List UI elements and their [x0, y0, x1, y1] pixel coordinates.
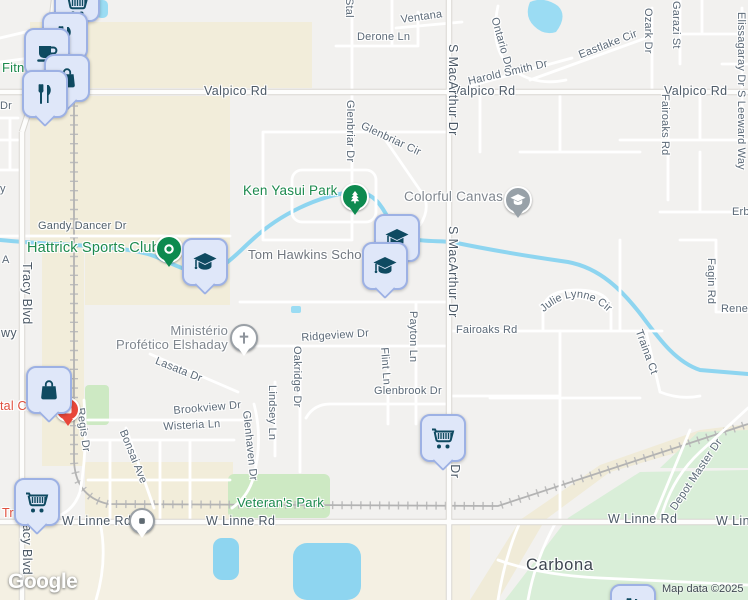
pond-southwest-1 — [213, 538, 239, 580]
road-label-fragment-a: A — [2, 254, 10, 266]
road-label-s-macarthur-2: S MacArthur Dr — [446, 226, 460, 318]
google-logo[interactable]: Google — [8, 570, 77, 594]
pond-southwest-2 — [293, 543, 361, 600]
cross-icon — [236, 330, 253, 347]
road-label-fagin-rd: Fagin Rd — [705, 258, 717, 304]
road-label-garazi-st: Garazi St — [670, 1, 682, 49]
school-pin-hattrick[interactable] — [182, 238, 228, 286]
poi-label-ministerio-line1: Ministério — [108, 324, 228, 338]
map-base-layer: Julie Lynne Cir — [0, 0, 748, 600]
road-label-glenbriar-dr: Glenbriar Dr — [344, 100, 356, 162]
road-label-fragment-dr: Dr — [0, 100, 12, 112]
ring-icon — [161, 241, 178, 258]
road-label-s-leeward-way: S Leeward Way — [735, 90, 747, 170]
road-label-valpico-3: Valpico Rd — [664, 84, 728, 98]
sports-club-pin[interactable] — [155, 235, 183, 263]
fork-knife-pin-cluster[interactable] — [22, 70, 68, 118]
map-data-attribution: Map data ©2025 — [662, 583, 744, 595]
tree-icon — [347, 189, 364, 206]
map-canvas[interactable]: Julie Lynne Cir Valpico Rd Valpico Rd Va… — [0, 0, 748, 600]
park-tree-pin[interactable] — [341, 183, 369, 211]
road-label-fragment-y: y — [0, 183, 6, 195]
poi-label-ministerio-line2: Profético Elshaday — [108, 338, 228, 352]
road-label-gandy-dancer: Gandy Dancer Dr — [38, 220, 127, 232]
fork-knife-icon — [620, 596, 646, 600]
shopping-bag-pin-store[interactable] — [26, 366, 72, 414]
poi-label-tom-hawkins-school[interactable]: Tom Hawkins School — [248, 247, 372, 262]
road-label-erb: Erb — [732, 206, 748, 218]
road-label-fairoaks-vertical: Fairoaks Rd — [659, 94, 671, 156]
colorful-canvas-pin[interactable] — [504, 186, 532, 214]
road-label-lindsey-ln: Lindsey Ln — [266, 385, 278, 440]
road-label-fragment-wy: wy — [1, 326, 17, 340]
road-label-w-linne-4: W Linne Rd — [716, 514, 748, 528]
road-label-valpico-2: Valpico Rd — [452, 84, 516, 98]
road-label-s-macarthur-1: S MacArthur Dr — [446, 44, 460, 136]
school-pin-tom-hawkins-2[interactable] — [362, 242, 408, 290]
poi-label-hattrick-sports-club[interactable]: Hattrick Sports Club — [27, 240, 160, 256]
shopping-bag-icon — [36, 378, 62, 402]
road-label-elissagaray: Elissagaray Dr — [735, 12, 747, 86]
road-label-glenbrook-dr: Glenbrook Dr — [374, 385, 442, 397]
poi-label-veterans-park[interactable]: Veteran's Park — [237, 495, 324, 510]
poi-label-fitness[interactable]: Fitn — [2, 60, 24, 75]
road-label-payton-ln: Payton Ln — [407, 311, 419, 362]
restaurant-pin-partial[interactable] — [610, 584, 656, 600]
road-label-fairoaks-horizontal: Fairoaks Rd — [456, 324, 518, 336]
road-label-w-linne-2: W Linne Rd — [206, 514, 275, 528]
shopping-cart-icon — [430, 426, 456, 450]
place-icon — [134, 513, 151, 530]
graduation-cap-icon — [510, 192, 527, 209]
road-label-ozark-dr: Ozark Dr — [642, 8, 654, 54]
road-label-derone-ln: Derone Ln — [357, 31, 410, 43]
graduation-cap-icon — [372, 254, 398, 278]
road-label-w-linne-1: W Linne Rd — [62, 514, 131, 528]
church-pin[interactable] — [230, 324, 258, 352]
gray-place-pin[interactable] — [129, 508, 155, 534]
road-label-oakridge-dr: Oakridge Dr — [291, 346, 303, 408]
graduation-cap-icon — [192, 250, 218, 274]
poi-label-ken-yasui-park[interactable]: Ken Yasui Park — [243, 183, 338, 198]
shopping-cart-pin-linne[interactable] — [14, 478, 60, 526]
shopping-cart-icon — [24, 490, 50, 514]
poi-label-colorful-canvas[interactable]: Colorful Canvas — [404, 189, 503, 204]
poi-label-ministerio[interactable]: Ministério Profético Elshaday — [108, 324, 228, 351]
locality-label-carbona: Carbona — [526, 556, 594, 575]
road-label-rene: Rene — [721, 303, 748, 315]
fork-knife-icon — [32, 82, 58, 106]
shopping-cart-pin-macarthur[interactable] — [420, 414, 466, 462]
road-label-valpico-1: Valpico Rd — [204, 84, 268, 98]
road-label-flint-ln: Flint Ln — [378, 347, 393, 385]
road-label-stal: Stal — [343, 0, 355, 18]
road-label-w-linne-3: W Linne Rd — [608, 512, 677, 526]
road-label-tracy-blvd: Tracy Blvd — [20, 262, 34, 325]
